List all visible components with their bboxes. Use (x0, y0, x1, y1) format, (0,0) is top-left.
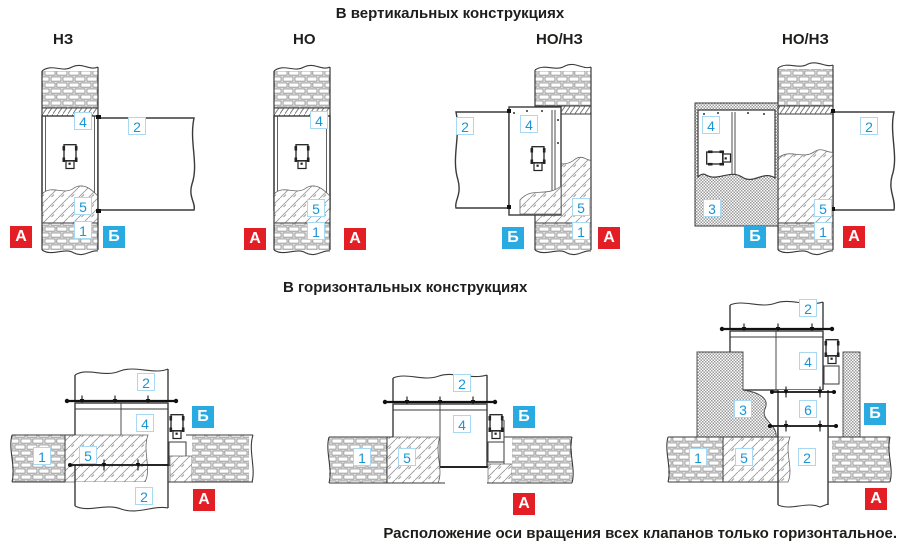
marker-b: Б (502, 227, 524, 249)
callout-6: 6 (799, 400, 817, 418)
marker-b: Б (864, 403, 886, 425)
callout-2: 2 (453, 374, 471, 392)
callout-5: 5 (814, 199, 832, 217)
callout-1: 1 (33, 447, 51, 465)
callout-5: 5 (572, 198, 590, 216)
callout-4: 4 (799, 352, 817, 370)
diagram-vertical-nz: 4 2 5 1 А Б (8, 58, 208, 263)
callout-2: 2 (128, 117, 146, 135)
callout-4: 4 (310, 111, 328, 129)
callout-2-top: 2 (799, 299, 817, 317)
marker-a: А (598, 227, 620, 249)
marker-b: Б (744, 226, 766, 248)
type-label-no: НО (293, 31, 316, 48)
callout-4: 4 (453, 415, 471, 433)
callout-1: 1 (353, 448, 371, 466)
section-title-vertical: В вертикальных конструкциях (0, 5, 900, 22)
diagram-horizontal-2: 2 4 1 5 Б А (295, 330, 580, 525)
section-title-horizontal: В горизонтальных конструкциях (283, 279, 527, 296)
h1-line-art (8, 318, 258, 518)
marker-a: А (513, 493, 535, 515)
callout-5: 5 (74, 197, 92, 215)
marker-a-right: А (344, 228, 366, 250)
h2-line-art (295, 330, 580, 525)
h3-line-art (648, 292, 900, 520)
callout-4: 4 (702, 116, 720, 134)
callout-1: 1 (572, 222, 590, 240)
callout-1: 1 (74, 221, 92, 239)
footnote-text: Расположение оси вращения всех клапанов … (383, 525, 897, 542)
marker-a: А (865, 488, 887, 510)
callout-3: 3 (703, 199, 721, 217)
callout-2-top: 2 (137, 373, 155, 391)
callout-3: 3 (734, 400, 752, 418)
v2-line-art (240, 58, 415, 263)
callout-1: 1 (307, 222, 325, 240)
callout-5: 5 (307, 199, 325, 217)
diagram-vertical-no-nz-2: 4 2 3 5 1 Б А (660, 58, 900, 263)
callout-1: 1 (689, 448, 707, 466)
type-label-no-nz-1: НО/НЗ (536, 31, 583, 48)
diagram-vertical-no-nz-1: 2 4 5 1 Б А (430, 58, 655, 263)
callout-4: 4 (136, 414, 154, 432)
callout-2-bottom: 2 (135, 487, 153, 505)
diagram-horizontal-3: 2 4 3 6 1 5 2 Б А (648, 292, 900, 520)
callout-2: 2 (860, 117, 878, 135)
callout-4: 4 (74, 112, 92, 130)
callout-4: 4 (520, 115, 538, 133)
marker-a-left: А (244, 228, 266, 250)
diagram-horizontal-1: 2 4 1 5 2 Б А (8, 318, 258, 518)
marker-a: А (193, 489, 215, 511)
v3-line-art (430, 58, 655, 263)
diagram-vertical-no: 4 5 1 А А (240, 58, 415, 263)
marker-b: Б (103, 226, 125, 248)
marker-b: Б (192, 406, 214, 428)
type-label-no-nz-2: НО/НЗ (782, 31, 829, 48)
callout-2-bottom: 2 (798, 448, 816, 466)
callout-2: 2 (456, 117, 474, 135)
callout-5: 5 (79, 446, 97, 464)
callout-5: 5 (735, 448, 753, 466)
type-label-nz: НЗ (53, 31, 73, 48)
damper-installation-diagram-page: В вертикальных конструкциях НЗ НО НО/НЗ … (0, 0, 900, 548)
marker-a: А (10, 226, 32, 248)
callout-5: 5 (398, 448, 416, 466)
marker-a: А (843, 226, 865, 248)
marker-b: Б (513, 406, 535, 428)
callout-1: 1 (814, 222, 832, 240)
